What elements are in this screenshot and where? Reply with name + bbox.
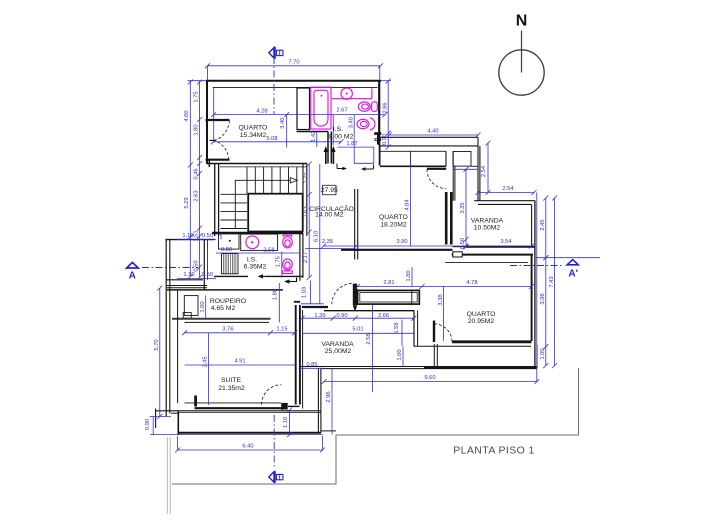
svg-text:0.50: 0.50 — [202, 272, 213, 278]
svg-text:21.35m2: 21.35m2 — [218, 385, 245, 392]
svg-text:3.40: 3.40 — [348, 117, 354, 128]
svg-text:1.58: 1.58 — [394, 322, 400, 333]
svg-text:3.45: 3.45 — [203, 356, 209, 367]
svg-text:7.70: 7.70 — [288, 59, 299, 65]
svg-text:4.00: 4.00 — [184, 110, 190, 121]
svg-text:I.S.: I.S. — [247, 257, 257, 264]
svg-text:2.66: 2.66 — [378, 313, 389, 319]
svg-text:1.75: 1.75 — [276, 256, 282, 267]
svg-text:1.80: 1.80 — [272, 289, 278, 300]
svg-text:1.00: 1.00 — [540, 348, 546, 359]
svg-text:3.54: 3.54 — [500, 239, 512, 245]
svg-text:SUITE: SUITE — [221, 377, 241, 384]
svg-text:0.80: 0.80 — [221, 247, 232, 253]
svg-text:4.84: 4.84 — [404, 199, 410, 211]
svg-text:PLANTA PISO 1: PLANTA PISO 1 — [453, 445, 534, 457]
svg-text:0.50: 0.50 — [460, 238, 466, 249]
svg-text:3.38: 3.38 — [438, 294, 444, 305]
svg-text:3.35: 3.35 — [460, 202, 466, 213]
svg-text:1.25: 1.25 — [303, 172, 309, 183]
svg-text:I.S.: I.S. — [333, 126, 343, 133]
svg-text:2.54: 2.54 — [502, 186, 514, 192]
svg-text:15.34M2: 15.34M2 — [240, 132, 267, 139]
svg-text:2.86: 2.86 — [382, 102, 388, 113]
svg-text:1.87: 1.87 — [346, 141, 357, 147]
svg-text:9.60: 9.60 — [424, 375, 435, 381]
svg-text:6.10: 6.10 — [314, 231, 320, 242]
svg-text:1.00: 1.00 — [200, 301, 206, 312]
svg-text:5.08: 5.08 — [266, 136, 277, 142]
svg-text:4.78: 4.78 — [466, 280, 477, 286]
svg-text:2.58: 2.58 — [366, 333, 372, 344]
svg-text:3.76: 3.76 — [222, 326, 233, 332]
svg-text:1.63: 1.63 — [303, 206, 309, 217]
svg-text:2.58: 2.58 — [263, 247, 274, 253]
svg-text:0.90: 0.90 — [336, 313, 347, 319]
svg-text:0.50: 0.50 — [193, 260, 199, 271]
svg-text:6.35M2: 6.35M2 — [244, 264, 267, 271]
svg-text:1.51: 1.51 — [193, 230, 199, 241]
svg-text:1.10: 1.10 — [182, 233, 193, 239]
svg-text:2.35: 2.35 — [322, 239, 333, 245]
svg-text:18.20M2: 18.20M2 — [380, 221, 407, 228]
svg-text:3.40: 3.40 — [280, 118, 286, 129]
svg-text:3.98: 3.98 — [540, 293, 546, 304]
svg-text:QUARTO: QUARTO — [238, 125, 267, 132]
svg-text:2.63: 2.63 — [193, 190, 199, 201]
svg-text:5.29: 5.29 — [184, 197, 190, 208]
svg-text:2.45: 2.45 — [540, 219, 546, 230]
svg-text:2.54: 2.54 — [481, 165, 487, 177]
svg-text:1.42: 1.42 — [311, 131, 317, 142]
svg-text:25,00M2: 25,00M2 — [325, 348, 352, 355]
svg-text:0.90: 0.90 — [382, 134, 388, 145]
svg-text:1.10: 1.10 — [183, 272, 194, 278]
svg-text:N: N — [516, 12, 528, 29]
svg-text:0.90: 0.90 — [145, 419, 151, 430]
svg-text:20.95M2: 20.95M2 — [468, 318, 495, 325]
svg-text:1.15: 1.15 — [276, 326, 287, 332]
svg-text:4.91: 4.91 — [234, 359, 245, 365]
svg-text:1.00: 1.00 — [397, 349, 403, 360]
svg-text:7.43: 7.43 — [549, 276, 555, 287]
svg-text:A': A' — [568, 269, 578, 280]
svg-text:1.80: 1.80 — [406, 270, 412, 281]
svg-text:QUARTO: QUARTO — [379, 214, 408, 221]
svg-text:2.17: 2.17 — [303, 252, 309, 263]
svg-text:8.00 M2: 8.00 M2 — [329, 133, 354, 140]
svg-text:0.46: 0.46 — [193, 168, 199, 179]
svg-text:6.40: 6.40 — [242, 444, 253, 450]
svg-text:2.96: 2.96 — [326, 391, 332, 402]
svg-text:1.80: 1.80 — [193, 124, 199, 135]
svg-text:1.10: 1.10 — [283, 417, 289, 428]
svg-text:1.39: 1.39 — [314, 313, 325, 319]
svg-text:3.90: 3.90 — [396, 239, 407, 245]
svg-text:4.28: 4.28 — [256, 108, 267, 114]
svg-text:0.85: 0.85 — [306, 362, 317, 368]
svg-text:5.70: 5.70 — [154, 339, 160, 350]
svg-text:0.50: 0.50 — [202, 233, 213, 239]
svg-text:10.50M2: 10.50M2 — [474, 225, 501, 232]
svg-text:27.95: 27.95 — [321, 187, 338, 194]
svg-text:1.75: 1.75 — [193, 91, 199, 102]
svg-text:A: A — [129, 271, 136, 282]
svg-text:2.81: 2.81 — [383, 280, 394, 286]
svg-text:1.03: 1.03 — [301, 287, 307, 298]
svg-text:4.65 M2: 4.65 M2 — [211, 305, 236, 312]
svg-text:VARANDA: VARANDA — [471, 218, 504, 225]
svg-text:2.67: 2.67 — [336, 108, 347, 114]
svg-text:4.40: 4.40 — [427, 129, 438, 135]
svg-text:5.01: 5.01 — [352, 327, 363, 333]
